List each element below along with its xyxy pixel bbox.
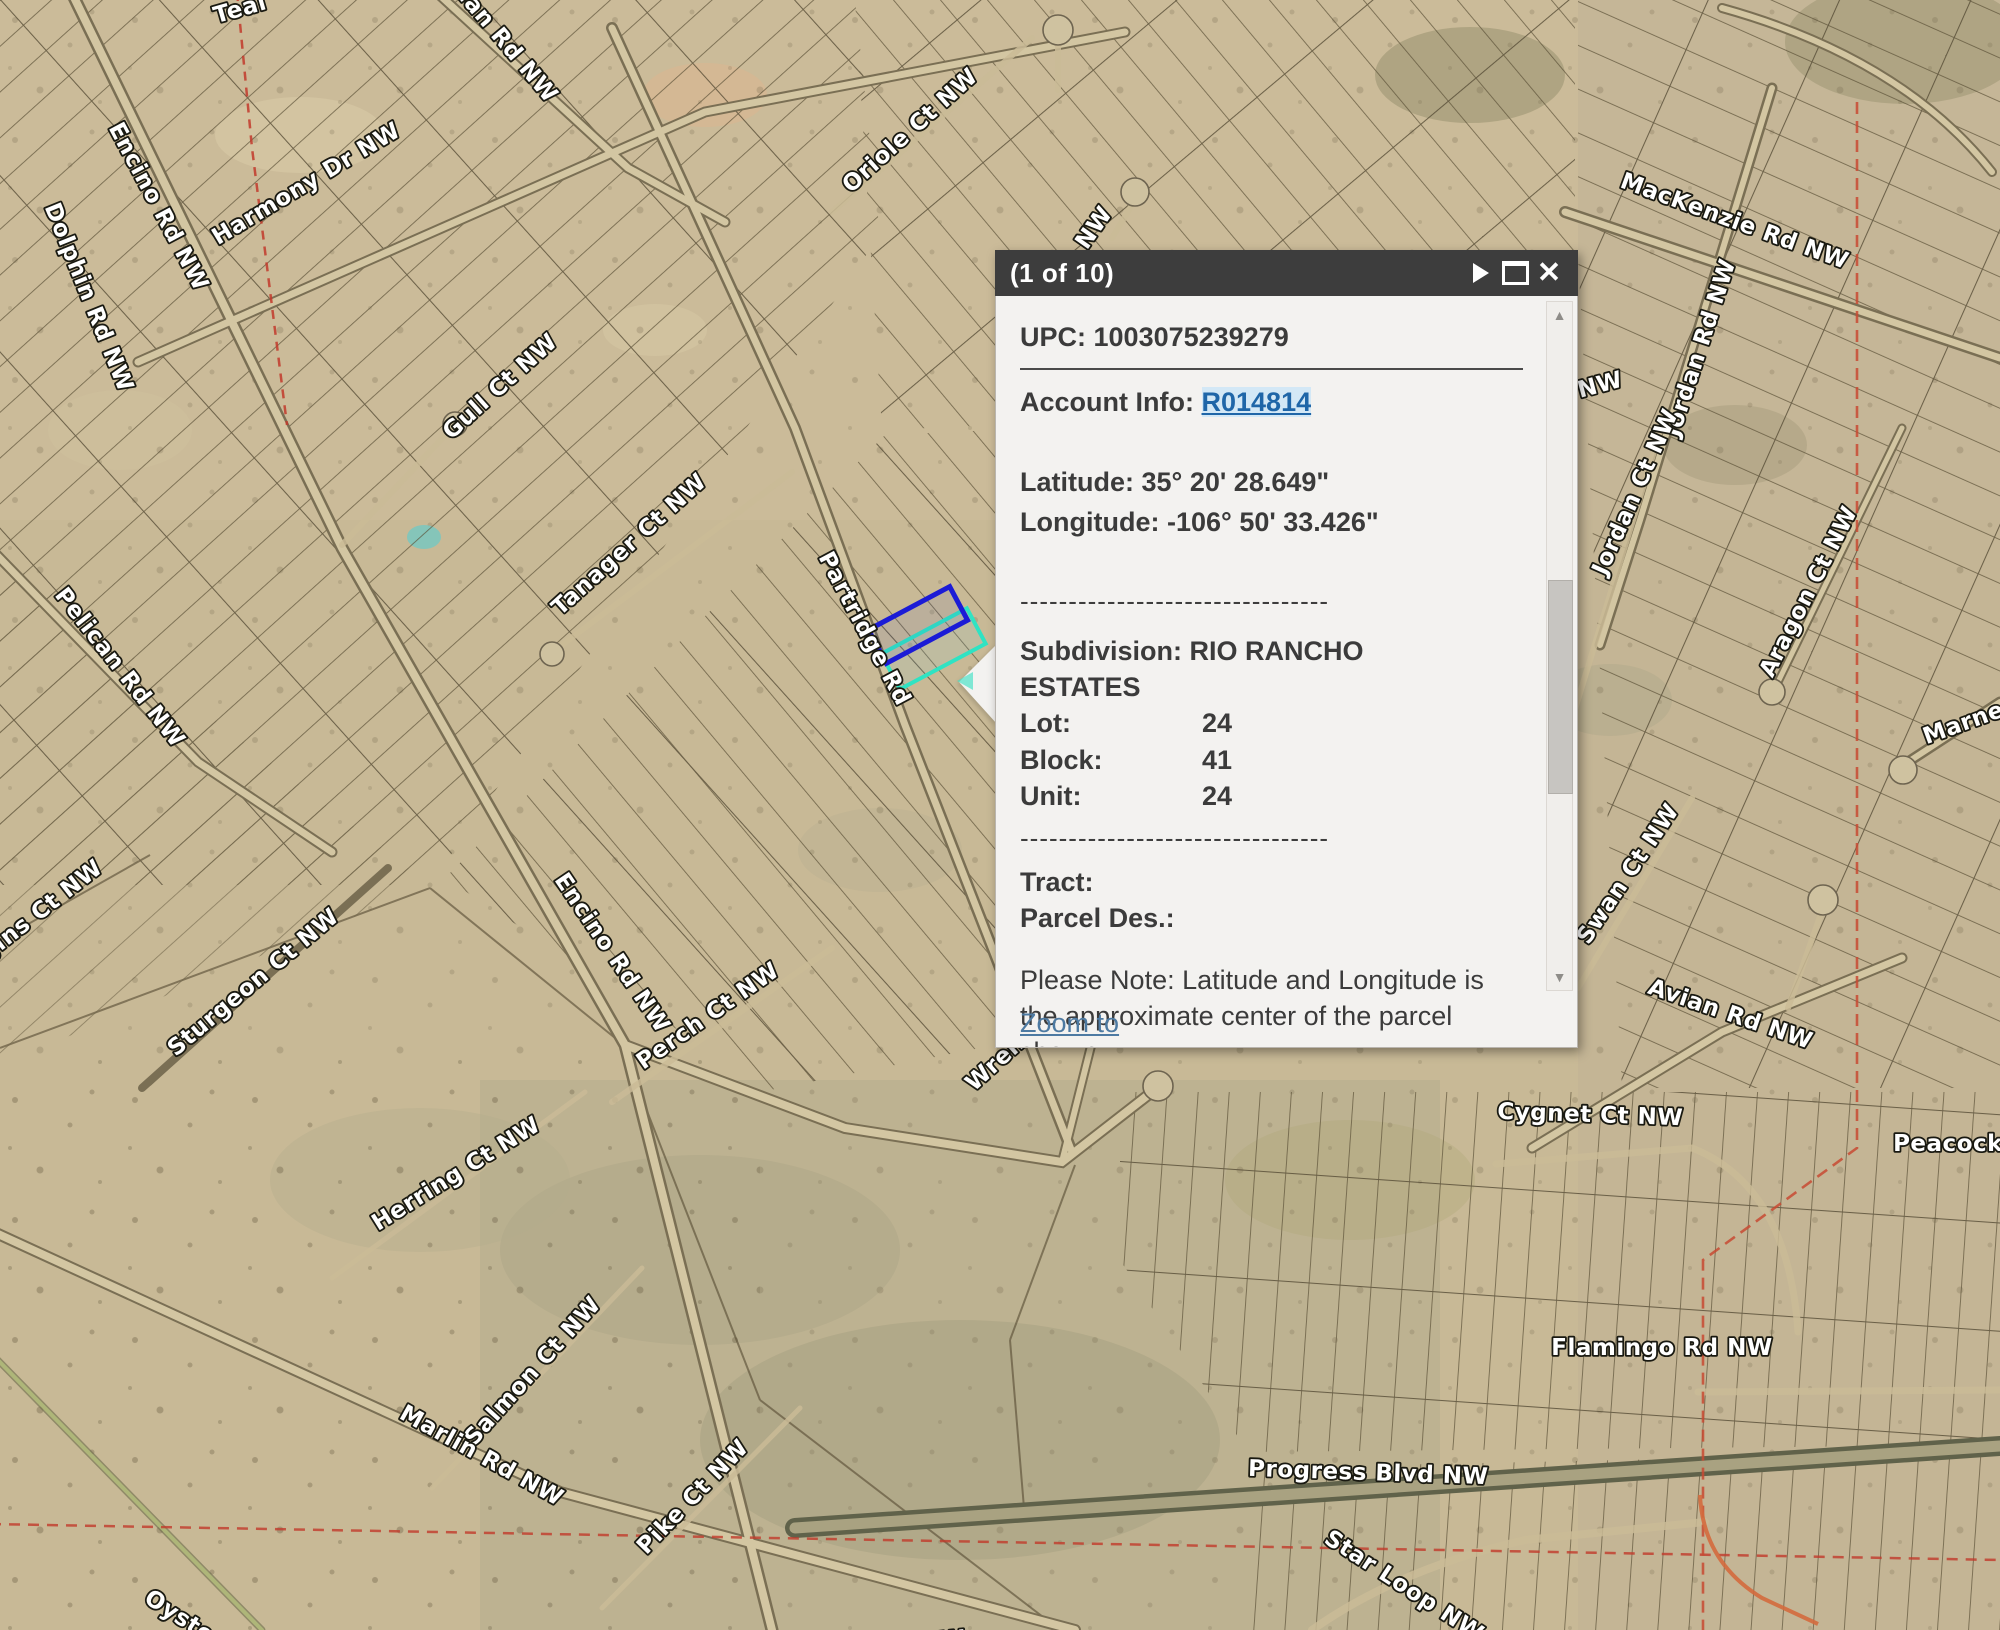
popup-header: (1 of 10) ✕ — [995, 250, 1578, 296]
zoom-to-link[interactable]: Zoom to — [1020, 1008, 1119, 1039]
longitude-value: -106° 50' 33.426" — [1167, 507, 1379, 537]
tract-block: Tract: Parcel Des.: — [1020, 864, 1537, 936]
account-label: Account Info: — [1020, 387, 1194, 417]
parcel-des-label: Parcel Des.: — [1020, 903, 1175, 933]
block-label: Block: — [1020, 742, 1202, 779]
maximize-button[interactable] — [1498, 255, 1532, 291]
tract-label: Tract: — [1020, 867, 1094, 897]
dashed-separator: -------------------------------- — [1020, 586, 1440, 617]
block-row: Block: 41 — [1020, 742, 1537, 779]
play-icon — [1473, 263, 1489, 283]
scroll-up-arrow[interactable]: ▲ — [1547, 302, 1572, 328]
dashed-separator: -------------------------------- — [1020, 823, 1440, 854]
lot-value: 24 — [1202, 705, 1232, 742]
upc-value: 1003075239279 — [1094, 322, 1289, 352]
close-button[interactable]: ✕ — [1532, 255, 1566, 291]
upc-row: UPC: 1003075239279 — [1020, 322, 1537, 353]
popup-title: (1 of 10) — [1010, 258, 1464, 289]
latitude-label: Latitude: — [1020, 467, 1134, 497]
lot-row: Lot: 24 — [1020, 705, 1537, 742]
popup-scrollbar[interactable]: ▲ ▼ — [1546, 301, 1573, 991]
account-link[interactable]: R014814 — [1202, 387, 1312, 417]
street-label: Peacock — [1893, 1131, 2000, 1157]
account-row: Account Info: R014814 — [1020, 387, 1537, 418]
scroll-down-arrow[interactable]: ▼ — [1547, 964, 1572, 990]
street-label: Flamingo Rd NW — [1551, 1335, 1772, 1361]
subdivision-row: Subdivision: RIO RANCHO ESTATES — [1020, 633, 1450, 705]
lot-label: Lot: — [1020, 705, 1202, 742]
latitude-value: 35° 20' 28.649" — [1142, 467, 1330, 497]
divider — [1020, 368, 1523, 370]
subdivision-label: Subdivision: — [1020, 636, 1182, 666]
gis-viewer: TealAvian Rd NWOriole Ct NWNWHarmony Dr … — [0, 0, 2000, 1630]
block-value: 41 — [1202, 742, 1232, 779]
next-result-button[interactable] — [1464, 255, 1498, 291]
unit-label: Unit: — [1020, 778, 1202, 815]
scrollbar-thumb[interactable] — [1548, 580, 1573, 794]
popup-callout-tip — [957, 672, 973, 690]
unit-value: 24 — [1202, 778, 1232, 815]
popup-body: UPC: 1003075239279 Account Info: R014814… — [995, 296, 1578, 1048]
close-icon: ✕ — [1537, 259, 1561, 288]
identify-popup: (1 of 10) ✕ UPC: 1003075239279 Account I… — [995, 250, 1578, 1048]
upc-label: UPC: — [1020, 322, 1086, 352]
maximize-icon — [1502, 261, 1529, 285]
unit-row: Unit: 24 — [1020, 778, 1537, 815]
longitude-label: Longitude: — [1020, 507, 1159, 537]
coordinates: Latitude: 35° 20' 28.649" Longitude: -10… — [1020, 462, 1537, 542]
